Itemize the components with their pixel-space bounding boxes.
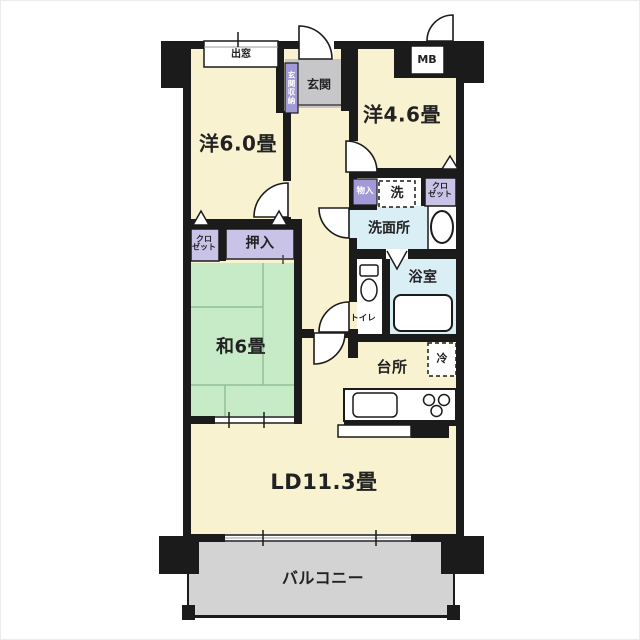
label-closet-left: クロ ゼット — [192, 236, 216, 253]
floor-plan: 出窓 玄関 玄関収納 MB 洋4.6畳 洋6.0畳 物入 洗 クロ ゼット 洗面… — [0, 0, 640, 640]
label-balcony: バルコニー — [282, 571, 364, 588]
label-washer: 洗 — [390, 187, 403, 201]
front-door-exterior — [299, 41, 334, 59]
label-western-room-46: 洋4.6畳 — [363, 105, 441, 126]
label-washroom: 洗面所 — [368, 222, 410, 237]
label-closet-right: クロ ゼット — [428, 183, 452, 200]
label-western-room-60: 洋6.0畳 — [199, 134, 277, 155]
label-meter-box: MB — [417, 54, 436, 66]
label-kitchen: 台所 — [376, 360, 407, 376]
label-japanese-room: 和6畳 — [216, 339, 266, 358]
label-bathroom: 浴室 — [409, 271, 438, 286]
meter-box-door-arc — [427, 15, 453, 41]
label-entrance: 玄関 — [307, 79, 331, 92]
label-entrance-storage: 玄関収納 — [287, 71, 295, 105]
label-storage: 物入 — [356, 188, 373, 197]
label-oshiire: 押入 — [246, 237, 275, 252]
label-toilet: トイレ — [350, 315, 376, 324]
room-basin-nook — [428, 206, 456, 251]
label-bay-window: 出窓 — [231, 50, 251, 61]
label-living-dining: LD11.3畳 — [270, 471, 377, 493]
label-refrigerator: 冷 — [437, 353, 448, 365]
